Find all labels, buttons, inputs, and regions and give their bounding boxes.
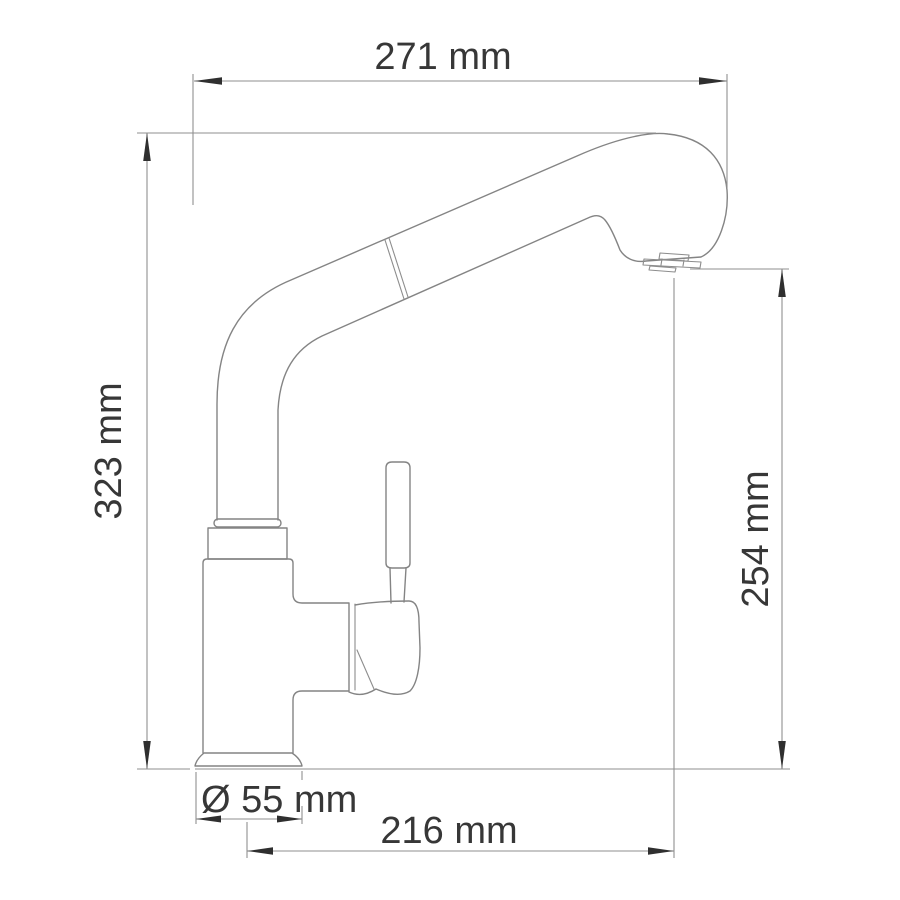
dimension-label-overall-width: 271 mm: [374, 36, 511, 78]
spout-and-head-outline: [217, 133, 727, 520]
extension-lines: [137, 133, 656, 769]
dimension-label-spout-outlet-height: 254 mm: [735, 470, 777, 607]
extension-lines: [247, 278, 674, 858]
valve-housing-seam: [357, 650, 374, 689]
handle-neck: [390, 568, 406, 603]
base-flare: [195, 753, 302, 766]
arrow-left: [194, 77, 222, 85]
spout-seam-line: [385, 238, 408, 299]
arrow-right: [648, 847, 674, 854]
faucet-outline: [195, 133, 727, 766]
upper-body-block: [208, 528, 287, 559]
dimension-overall-height: 323 mm: [88, 133, 656, 769]
arrow-top: [778, 269, 786, 297]
handle-lever: [386, 462, 410, 568]
riser-collar: [214, 519, 281, 527]
faucet-drawing-svg: 271 mm 323 mm 254 mm Ø 55 mm: [0, 0, 900, 900]
technical-drawing: 271 mm 323 mm 254 mm Ø 55 mm: [0, 0, 900, 900]
arrow-left: [247, 847, 273, 854]
dimension-spout-outlet-height: 254 mm: [690, 269, 789, 769]
valve-housing: [349, 601, 420, 694]
dimension-label-spout-reach: 216 mm: [380, 810, 517, 852]
dimension-label-base-diameter: Ø 55 mm: [201, 779, 357, 821]
dimension-spout-reach: 216 mm: [247, 278, 674, 858]
arrow-bottom: [778, 741, 786, 769]
dimension-label-overall-height: 323 mm: [88, 382, 130, 519]
dimension-overall-width: 271 mm: [193, 36, 727, 205]
arrow-top: [143, 133, 151, 161]
body-outline: [203, 559, 349, 753]
dimension-base-diameter: Ø 55 mm: [196, 771, 357, 824]
arrow-bottom: [143, 741, 151, 769]
extension-lines: [193, 74, 727, 205]
arrow-right: [699, 77, 727, 85]
